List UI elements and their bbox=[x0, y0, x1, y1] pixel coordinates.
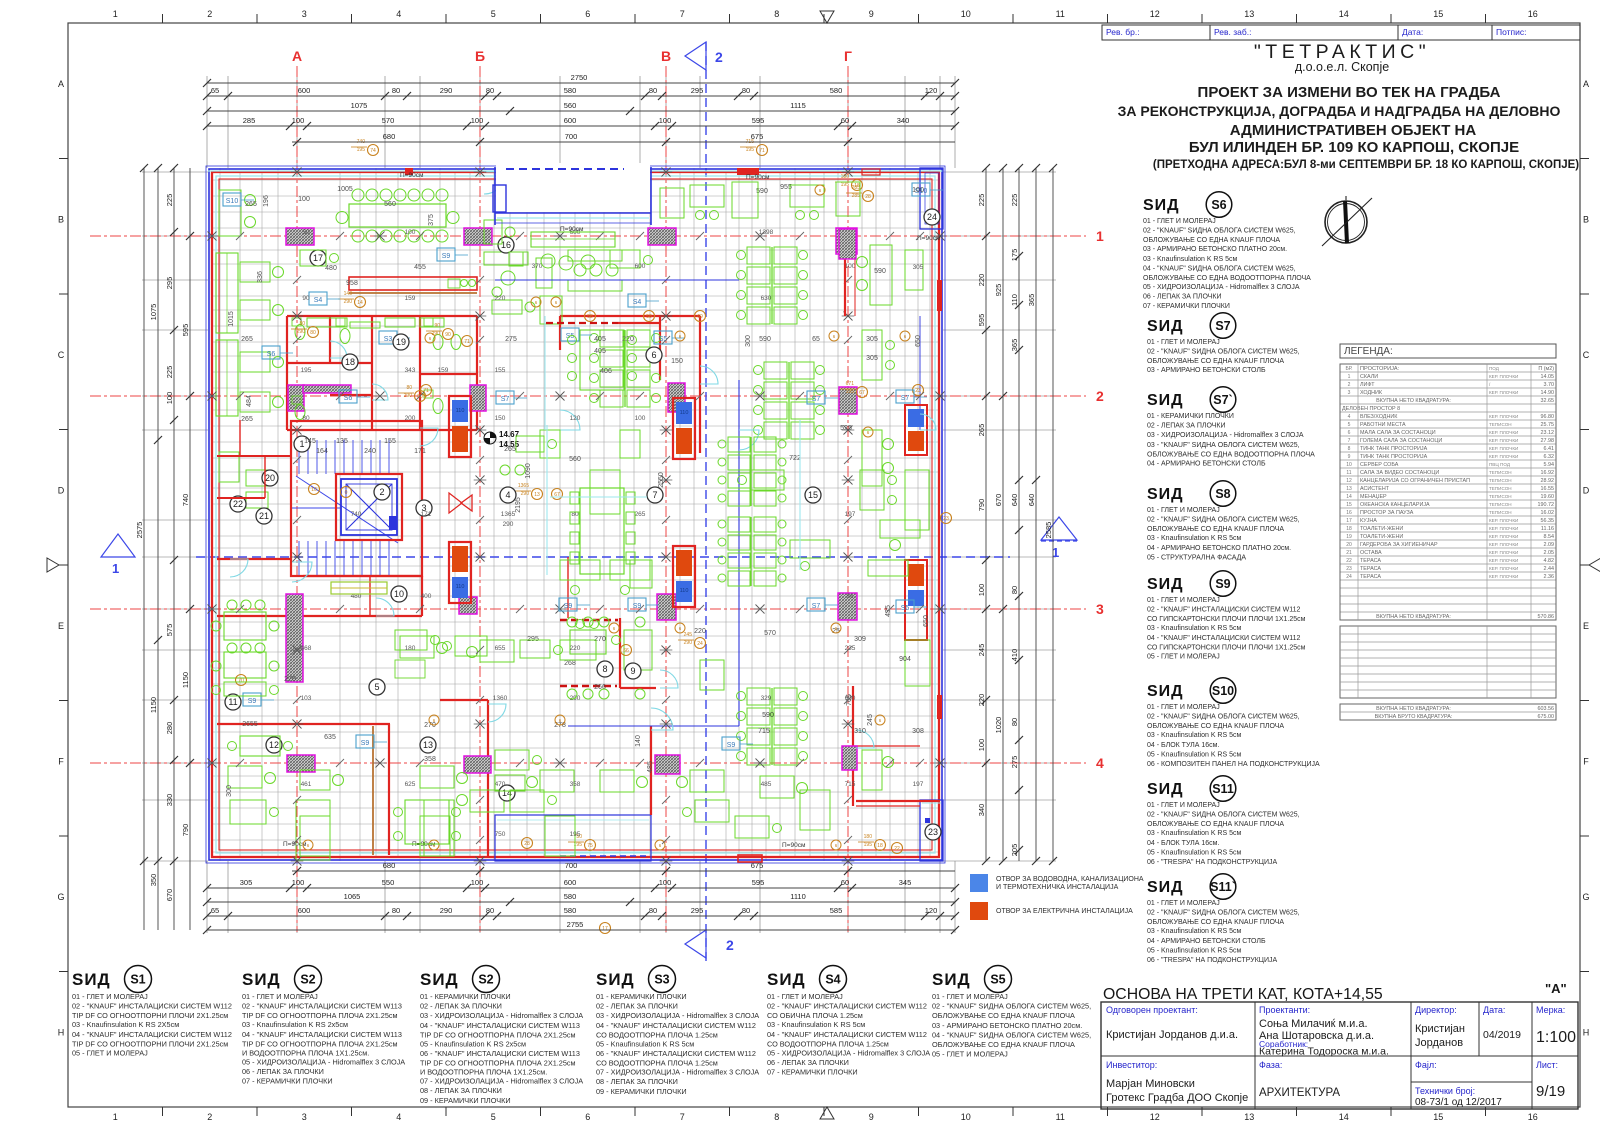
svg-text:590: 590 bbox=[759, 336, 771, 343]
svg-text:13: 13 bbox=[1346, 486, 1352, 492]
svg-text:СО ВОДООТПОРНА ПЛОЧА 1.25см: СО ВОДООТПОРНА ПЛОЧА 1.25см bbox=[767, 1039, 889, 1048]
svg-text:280: 280 bbox=[165, 722, 174, 735]
svg-text:3: 3 bbox=[1348, 390, 1351, 396]
svg-text:SИД: SИД bbox=[420, 970, 459, 989]
svg-text:05 - ГЛЕТ И МОЛЕРАЈ: 05 - ГЛЕТ И МОЛЕРАЈ bbox=[72, 1048, 148, 1057]
svg-text:80: 80 bbox=[1010, 586, 1019, 594]
svg-text:23.12: 23.12 bbox=[1541, 430, 1555, 436]
svg-text:П=90см: П=90см bbox=[746, 174, 770, 181]
svg-text:H: H bbox=[58, 1027, 65, 1037]
svg-text:S9: S9 bbox=[442, 253, 451, 260]
svg-text:675: 675 bbox=[751, 132, 764, 141]
svg-text:03 - ХИДРОИЗОЛАЦИЈА - Hidromal: 03 - ХИДРОИЗОЛАЦИЈА - Hidromalflex 3 СЛО… bbox=[1147, 432, 1304, 439]
svg-text:КЕР. ПЛОЧКИ: КЕР. ПЛОЧКИ bbox=[1489, 558, 1518, 563]
svg-text:12: 12 bbox=[1346, 478, 1352, 484]
svg-text:603.56: 603.56 bbox=[1538, 706, 1555, 712]
svg-text:2.44: 2.44 bbox=[1544, 566, 1555, 572]
svg-text:110: 110 bbox=[456, 408, 465, 414]
svg-text:11: 11 bbox=[1056, 1112, 1065, 1122]
svg-text:РАБОТНИ МЕСТА: РАБОТНИ МЕСТА bbox=[1360, 422, 1406, 428]
svg-text:ТЕПИСОН: ТЕПИСОН bbox=[1489, 502, 1512, 507]
svg-text:740: 740 bbox=[181, 494, 190, 507]
svg-text:03 - ХИДРОИЗОЛАЦИЈА - Hidromal: 03 - ХИДРОИЗОЛАЦИЈА - Hidromalflex 3 СЛО… bbox=[420, 1011, 583, 1020]
svg-text:TIP DF СО ОГНООТПОРНА ПЛОЧА 2X: TIP DF СО ОГНООТПОРНА ПЛОЧА 2X1.25см bbox=[242, 1011, 398, 1020]
svg-text:S5: S5 bbox=[990, 973, 1005, 987]
svg-text:461: 461 bbox=[301, 781, 312, 788]
svg-text:220: 220 bbox=[977, 694, 986, 707]
svg-text:09 - КЕРАМИЧКИ ПЛОЧКИ: 09 - КЕРАМИЧКИ ПЛОЧКИ bbox=[596, 1087, 687, 1096]
svg-text:329: 329 bbox=[761, 695, 772, 702]
svg-text:ГОЛЕМА САЛА ЗА СОСТАНОЦИ: ГОЛЕМА САЛА ЗА СОСТАНОЦИ bbox=[1360, 438, 1442, 444]
svg-text:370: 370 bbox=[532, 263, 543, 270]
svg-text:2: 2 bbox=[207, 1112, 212, 1122]
svg-text:790: 790 bbox=[977, 499, 986, 512]
svg-text:96.80: 96.80 bbox=[1541, 414, 1555, 420]
svg-text:05 - ГЛЕТ И МОЛЕРАЈ: 05 - ГЛЕТ И МОЛЕРАЈ bbox=[1147, 653, 1220, 660]
svg-text:D: D bbox=[1583, 485, 1590, 495]
svg-text:600: 600 bbox=[845, 695, 856, 702]
svg-text:12: 12 bbox=[1150, 9, 1160, 19]
svg-text:S6: S6 bbox=[344, 395, 353, 402]
svg-text:595: 595 bbox=[752, 878, 765, 887]
svg-text:01 - ГЛЕТ И МОЛЕРАЈ: 01 - ГЛЕТ И МОЛЕРАЈ bbox=[242, 992, 318, 1001]
svg-text:02 - "KNAUF" SИДНА ОБЛОГА СИС: 02 - "KNAUF" SИДНА ОБЛОГА СИСТЕМ W625, bbox=[1147, 517, 1300, 524]
svg-text:05 - ХИДРОИЗОЛАЦИЈА - Hidromal: 05 - ХИДРОИЗОЛАЦИЈА - Hidromalflex 3 СЛО… bbox=[242, 1057, 405, 1066]
svg-text:1090: 1090 bbox=[525, 463, 532, 479]
svg-text:02 - "KNAUF" ИНСТАЛАЦИСКИ СИСТ: 02 - "KNAUF" ИНСТАЛАЦИСКИ СИСТЕМ W112 bbox=[767, 1002, 927, 1011]
svg-text:485: 485 bbox=[761, 781, 772, 788]
svg-text:КАНЦЕЛАРИЈА СО ОГРАНИЧЕН ПРИСТ: КАНЦЕЛАРИЈА СО ОГРАНИЧЕН ПРИСТАП bbox=[1360, 478, 1470, 484]
svg-text:266: 266 bbox=[594, 684, 606, 691]
svg-text:345: 345 bbox=[899, 878, 912, 887]
svg-text:80: 80 bbox=[742, 906, 750, 915]
svg-text:590: 590 bbox=[874, 268, 886, 275]
svg-text:23: 23 bbox=[943, 516, 949, 522]
svg-text:100: 100 bbox=[165, 392, 174, 405]
svg-text:22: 22 bbox=[894, 846, 900, 852]
svg-text:Кристијан: Кристијан bbox=[1415, 1023, 1465, 1035]
svg-text:02 - "KNAUF" ИНСТАЛАЦИСКИ СИСТ: 02 - "KNAUF" ИНСТАЛАЦИСКИ СИСТЕМ W112 bbox=[72, 1002, 232, 1011]
svg-text:ГАРДЕРОБА ЗА ХИГИЕНИЧАР: ГАРДЕРОБА ЗА ХИГИЕНИЧАР bbox=[1360, 542, 1438, 548]
svg-text:670: 670 bbox=[165, 889, 174, 902]
svg-text:КЕР. ПЛОЧКИ: КЕР. ПЛОЧКИ bbox=[1489, 414, 1518, 419]
svg-text:295: 295 bbox=[165, 277, 174, 290]
svg-text:14.90: 14.90 bbox=[1541, 390, 1555, 396]
svg-text:19: 19 bbox=[396, 337, 406, 347]
svg-text:2: 2 bbox=[379, 487, 384, 497]
svg-text:150: 150 bbox=[495, 415, 506, 422]
svg-text:180: 180 bbox=[841, 174, 850, 180]
svg-text:06 - ЛЕПАК ЗА ПЛОЧКИ: 06 - ЛЕПАК ЗА ПЛОЧКИ bbox=[1143, 294, 1222, 301]
svg-text:197: 197 bbox=[913, 781, 924, 788]
svg-text:ЛЕГЕНДА:: ЛЕГЕНДА: bbox=[1344, 346, 1393, 357]
svg-text:245: 245 bbox=[867, 714, 874, 726]
svg-text:05 - Knaufinsulation K RS 5см: 05 - Knaufinsulation K RS 5см bbox=[1147, 751, 1241, 758]
svg-text:S3: S3 bbox=[384, 336, 393, 343]
svg-text:Директор:: Директор: bbox=[1415, 1005, 1457, 1015]
svg-text:700: 700 bbox=[565, 861, 578, 870]
svg-text:01 - КЕРАМИЧКИ ПЛОЧКИ: 01 - КЕРАМИЧКИ ПЛОЧКИ bbox=[1147, 413, 1234, 420]
svg-text:58: 58 bbox=[587, 314, 593, 320]
svg-text:16.02: 16.02 bbox=[1541, 510, 1555, 516]
svg-text:1015: 1015 bbox=[228, 311, 235, 327]
svg-text:225: 225 bbox=[165, 366, 174, 379]
svg-text:1150: 1150 bbox=[181, 672, 190, 688]
svg-text:02 - "KNAUF" SИДНА ОБЛОГА СИС: 02 - "KNAUF" SИДНА ОБЛОГА СИСТЕМ W625, bbox=[1147, 349, 1300, 356]
svg-text:100: 100 bbox=[292, 878, 305, 887]
svg-text:КЕР. ПЛОЧКИ: КЕР. ПЛОЧКИ bbox=[1489, 534, 1518, 539]
svg-text:02 - ЛЕПАК ЗА ПЛОЧКИ: 02 - ЛЕПАК ЗА ПЛОЧКИ bbox=[420, 1002, 502, 1011]
svg-text:110: 110 bbox=[1010, 294, 1019, 306]
svg-text:5: 5 bbox=[374, 682, 379, 692]
svg-text:ВКУПНА НЕТО КВАДРАТУРА:: ВКУПНА НЕТО КВАДРАТУРА: bbox=[1376, 614, 1451, 620]
svg-text:S4: S4 bbox=[314, 297, 323, 304]
svg-text:ТИНК ТАНК ПРОСТОРИЈА: ТИНК ТАНК ПРОСТОРИЈА bbox=[1360, 454, 1428, 460]
svg-text:485: 485 bbox=[647, 761, 654, 773]
svg-text:12: 12 bbox=[269, 740, 279, 750]
svg-text:02 - "KNAUF" SИДНА ОБЛОГА СИС: 02 - "KNAUF" SИДНА ОБЛОГА СИСТЕМ W625, bbox=[1143, 228, 1296, 235]
svg-text:180: 180 bbox=[405, 645, 416, 652]
svg-text:2.36: 2.36 bbox=[1544, 574, 1555, 580]
svg-text:S10: S10 bbox=[1212, 684, 1234, 698]
svg-text:290: 290 bbox=[297, 329, 306, 335]
svg-text:ТЕПИСОН: ТЕПИСОН bbox=[1489, 494, 1512, 499]
svg-text:ТЕРАСА: ТЕРАСА bbox=[1360, 574, 1381, 580]
svg-text:197: 197 bbox=[845, 511, 856, 518]
svg-text:G: G bbox=[1582, 892, 1589, 902]
svg-text:7: 7 bbox=[652, 490, 657, 500]
svg-text:60: 60 bbox=[841, 878, 849, 887]
svg-text:07 - КЕРАМИЧКИ ПЛОЧКИ: 07 - КЕРАМИЧКИ ПЛОЧКИ bbox=[767, 1068, 858, 1077]
svg-text:560: 560 bbox=[384, 201, 396, 208]
svg-text:B: B bbox=[58, 214, 64, 224]
svg-text:11.16: 11.16 bbox=[1541, 526, 1554, 532]
svg-text:220: 220 bbox=[977, 274, 986, 287]
svg-text:C: C bbox=[58, 350, 65, 360]
svg-text:270: 270 bbox=[284, 676, 296, 683]
svg-text:06 - ЛЕПАК ЗА ПЛОЧКИ: 06 - ЛЕПАК ЗА ПЛОЧКИ bbox=[767, 1058, 849, 1067]
svg-text:75: 75 bbox=[587, 843, 593, 849]
svg-text:E: E bbox=[58, 621, 64, 631]
svg-text:1115: 1115 bbox=[790, 101, 806, 110]
svg-text:265: 265 bbox=[977, 424, 986, 437]
svg-text:196: 196 bbox=[263, 195, 270, 207]
svg-text:ОТВОР ЗА ЕЛЕКТРИЧНА ИНСТАЛАЦИЈ: ОТВОР ЗА ЕЛЕКТРИЧНА ИНСТАЛАЦИЈА bbox=[996, 908, 1133, 915]
svg-text:100: 100 bbox=[405, 229, 416, 236]
svg-text:ТЕРАСА: ТЕРАСА bbox=[1360, 558, 1381, 564]
svg-text:675.00: 675.00 bbox=[1538, 714, 1555, 720]
svg-text:02 - "KNAUF" ИНСТАЛАЦИСКИ СИСТ: 02 - "KNAUF" ИНСТАЛАЦИСКИ СИСТЕМ W112 bbox=[1147, 607, 1301, 614]
svg-text:70: 70 bbox=[238, 678, 244, 684]
svg-text:ПРОЕКТ ЗА ИЗМЕНИ ВО ТЕК НА ГРА: ПРОЕКТ ЗА ИЗМЕНИ ВО ТЕК НА ГРАДБА bbox=[1198, 84, 1501, 101]
svg-text:A: A bbox=[1583, 79, 1589, 89]
svg-text:24: 24 bbox=[1346, 574, 1352, 580]
svg-text:220: 220 bbox=[694, 628, 706, 635]
svg-text:д.о.о.е.л. Скопје: д.о.о.е.л. Скопје bbox=[1295, 60, 1389, 74]
svg-text:"А": "А" bbox=[1545, 981, 1567, 996]
svg-text:80: 80 bbox=[486, 906, 494, 915]
svg-text:23: 23 bbox=[928, 827, 938, 837]
svg-text:20: 20 bbox=[1346, 542, 1352, 548]
svg-text:155: 155 bbox=[384, 438, 396, 445]
svg-text:405: 405 bbox=[594, 348, 606, 355]
svg-text:МАЛА САЛА ЗА СОСТАНОЦИ: МАЛА САЛА ЗА СОСТАНОЦИ bbox=[1360, 430, 1436, 436]
svg-text:S7: S7 bbox=[901, 395, 910, 402]
svg-text:100: 100 bbox=[845, 263, 856, 270]
svg-text:03 - Knaufinsulation K RS 5см: 03 - Knaufinsulation K RS 5см bbox=[1147, 625, 1241, 632]
svg-text:КЕР. ПЛОЧКИ: КЕР. ПЛОЧКИ bbox=[1489, 574, 1518, 579]
svg-text:67: 67 bbox=[859, 390, 865, 396]
svg-text:01 - КЕРАМИЧКИ ПЛОЧКИ: 01 - КЕРАМИЧКИ ПЛОЧКИ bbox=[420, 992, 511, 1001]
svg-text:Б: Б bbox=[475, 48, 485, 64]
svg-text:КЕР. ПЛОЧКИ: КЕР. ПЛОЧКИ bbox=[1489, 454, 1518, 459]
svg-text:15: 15 bbox=[1433, 9, 1443, 19]
svg-text:1110: 1110 bbox=[790, 892, 806, 901]
svg-text:200: 200 bbox=[405, 415, 416, 422]
svg-text:2: 2 bbox=[207, 9, 212, 19]
svg-text:П=90см: П=90см bbox=[400, 172, 424, 179]
svg-text:175: 175 bbox=[1010, 249, 1019, 262]
svg-text:03 - Knaufinsulation K RS 2X5с: 03 - Knaufinsulation K RS 2X5см bbox=[72, 1020, 179, 1029]
svg-text:SИД: SИД bbox=[596, 970, 635, 989]
svg-text:21: 21 bbox=[1346, 550, 1352, 556]
svg-text:Рев. заб.:: Рев. заб.: bbox=[1214, 27, 1251, 37]
svg-text:265: 265 bbox=[635, 511, 646, 518]
svg-text:03 - Knaufinsulation K RS 2x5с: 03 - Knaufinsulation K RS 2x5см bbox=[242, 1020, 348, 1029]
svg-text:195: 195 bbox=[357, 147, 366, 153]
svg-text:18: 18 bbox=[854, 183, 860, 189]
svg-text:SИД: SИД bbox=[1147, 781, 1184, 798]
svg-text:S7: S7 bbox=[501, 396, 510, 403]
svg-text:225: 225 bbox=[165, 194, 174, 207]
svg-text:110: 110 bbox=[680, 410, 689, 416]
svg-text:58: 58 bbox=[646, 314, 652, 320]
svg-text:S9: S9 bbox=[248, 698, 257, 705]
svg-text:B: B bbox=[1583, 214, 1589, 224]
svg-text:20: 20 bbox=[265, 473, 275, 483]
svg-text:1150: 1150 bbox=[149, 697, 158, 713]
svg-text:600: 600 bbox=[564, 116, 577, 125]
svg-text:400: 400 bbox=[421, 593, 432, 600]
svg-text:680: 680 bbox=[383, 861, 396, 870]
svg-text:80: 80 bbox=[299, 321, 305, 327]
svg-text:H: H bbox=[1583, 1027, 1590, 1037]
svg-text:28: 28 bbox=[865, 194, 871, 200]
svg-text:275: 275 bbox=[1010, 756, 1019, 769]
svg-text:240: 240 bbox=[364, 448, 376, 455]
svg-text:600: 600 bbox=[298, 86, 311, 95]
svg-text:06 - "KNAUF" ИНСТАЛАЦИСКИ СИСТ: 06 - "KNAUF" ИНСТАЛАЦИСКИ СИСТЕМ W113 bbox=[420, 1049, 580, 1058]
svg-text:80: 80 bbox=[302, 415, 310, 422]
svg-text:722: 722 bbox=[789, 455, 801, 462]
svg-text:05 - Knaufinsulation K RS 5см: 05 - Knaufinsulation K RS 5см bbox=[1147, 849, 1241, 856]
svg-text:03 - Knaufinsulation K RS 5см: 03 - Knaufinsulation K RS 5см bbox=[767, 1020, 865, 1029]
svg-text:01 - ГЛЕТ И МОЛЕРАЈ: 01 - ГЛЕТ И МОЛЕРАЈ bbox=[72, 992, 148, 1001]
svg-text:07 - КЕРАМИЧКИ ПЛОЧКИ: 07 - КЕРАМИЧКИ ПЛОЧКИ bbox=[242, 1077, 333, 1086]
svg-text:01 - ГЛЕТ И МОЛЕРАЈ: 01 - ГЛЕТ И МОЛЕРАЈ bbox=[1147, 339, 1220, 346]
svg-text:715: 715 bbox=[845, 781, 856, 788]
svg-text:3.70: 3.70 bbox=[1544, 382, 1555, 388]
svg-text:D: D bbox=[58, 485, 65, 495]
svg-text:КЕР. ПЛОЧКИ: КЕР. ПЛОЧКИ bbox=[1489, 438, 1518, 443]
svg-text:ОСНОВА НА ТРЕТИ КАТ, КОТА+14,: ОСНОВА НА ТРЕТИ КАТ, КОТА+14,55 bbox=[1103, 986, 1383, 1003]
svg-text:19.60: 19.60 bbox=[1541, 494, 1555, 500]
svg-text:04 - "KNAUF" ИНСТАЛАЦИСКИ СИСТ: 04 - "KNAUF" ИНСТАЛАЦИСКИ СИСТЕМ W112 bbox=[596, 1021, 756, 1030]
svg-text:Мерка:: Мерка: bbox=[1536, 1005, 1565, 1015]
svg-text:28.92: 28.92 bbox=[1541, 478, 1555, 484]
svg-text:2750: 2750 bbox=[571, 73, 588, 82]
svg-text:100: 100 bbox=[659, 116, 672, 125]
svg-text:715: 715 bbox=[758, 728, 770, 735]
svg-text:25.75: 25.75 bbox=[1541, 422, 1555, 428]
svg-text:КЕР. ПЛОЧКИ: КЕР. ПЛОЧКИ bbox=[1489, 390, 1518, 395]
svg-text:04 - БЛОК ТУЛА 16см.: 04 - БЛОК ТУЛА 16см. bbox=[1147, 742, 1219, 749]
svg-text:14: 14 bbox=[1346, 494, 1352, 500]
svg-text:ОБЛОЖУВАЊЕ СО ЕДНА KNAUF ПЛОЧА: ОБЛОЖУВАЊЕ СО ЕДНА KNAUF ПЛОЧА bbox=[1147, 723, 1284, 730]
svg-text:08 - ЛЕПАК ЗА ПЛОЧКИ: 08 - ЛЕПАК ЗА ПЛОЧКИ bbox=[420, 1086, 502, 1095]
svg-text:Соња Милачиќ м.и.а.: Соња Милачиќ м.и.а. bbox=[1259, 1018, 1368, 1030]
svg-text:470: 470 bbox=[495, 781, 506, 788]
svg-text:05 - ХИДРОИЗОЛАЦИЈА - Hidromal: 05 - ХИДРОИЗОЛАЦИЈА - Hidromalflex 3 СЛО… bbox=[767, 1048, 930, 1057]
svg-text:6: 6 bbox=[651, 350, 656, 360]
svg-text:56.35: 56.35 bbox=[1541, 518, 1555, 524]
svg-text:343: 343 bbox=[405, 367, 416, 374]
svg-text:S9: S9 bbox=[727, 742, 736, 749]
svg-text:468: 468 bbox=[301, 645, 312, 652]
svg-text:Инвеститор:: Инвеститор: bbox=[1106, 1060, 1157, 1070]
svg-text:ОБЛОЖУВАЊЕ СО ЕДНА KNAUF ПЛОЧА: ОБЛОЖУВАЊЕ СО ЕДНА KNAUF ПЛОЧА bbox=[1143, 237, 1280, 244]
svg-text:S6: S6 bbox=[1211, 198, 1226, 212]
svg-text:790: 790 bbox=[181, 824, 190, 837]
svg-text:04 - "KNAUF" SИДНА ОБЛОГА СИС: 04 - "KNAUF" SИДНА ОБЛОГА СИСТЕМ W625, bbox=[932, 1030, 1091, 1039]
svg-text:ОБЛОЖУВАЊЕ СО ЕДНА KNAUF ПЛОЧА: ОБЛОЖУВАЊЕ СО ЕДНА KNAUF ПЛОЧА bbox=[1147, 919, 1284, 926]
svg-text:358: 358 bbox=[570, 781, 581, 788]
svg-text:3: 3 bbox=[302, 1112, 307, 1122]
svg-text:17: 17 bbox=[313, 253, 323, 263]
svg-text:14.05: 14.05 bbox=[1541, 374, 1555, 380]
svg-text:5: 5 bbox=[491, 1112, 496, 1122]
svg-text:100: 100 bbox=[298, 196, 310, 203]
svg-text:110: 110 bbox=[680, 588, 689, 594]
svg-text:ТОАЛЕТИ-ЖЕНИ: ТОАЛЕТИ-ЖЕНИ bbox=[1360, 534, 1403, 540]
svg-text:6.32: 6.32 bbox=[1544, 454, 1555, 460]
svg-text:Лист:: Лист: bbox=[1536, 1060, 1558, 1070]
svg-text:8.54: 8.54 bbox=[1544, 534, 1555, 540]
svg-text:КУЈНА: КУЈНА bbox=[1360, 518, 1377, 524]
svg-text:2: 2 bbox=[1096, 388, 1104, 404]
svg-text:600: 600 bbox=[298, 906, 311, 915]
svg-text:69: 69 bbox=[697, 314, 703, 320]
svg-text:71: 71 bbox=[464, 339, 470, 345]
svg-text:Фајл:: Фајл: bbox=[1415, 1060, 1437, 1070]
svg-text:195: 195 bbox=[746, 147, 755, 153]
svg-text:1020: 1020 bbox=[994, 717, 1003, 734]
svg-text:1365: 1365 bbox=[518, 483, 529, 489]
svg-text:305: 305 bbox=[866, 336, 878, 343]
svg-text:1:100: 1:100 bbox=[1536, 1029, 1576, 1046]
svg-text:340: 340 bbox=[897, 116, 910, 125]
svg-text:П=90см: П=90см bbox=[917, 235, 941, 242]
svg-text:ВКУПНА БРУТО КВАДРАТУРА:: ВКУПНА БРУТО КВАДРАТУРА: bbox=[1375, 714, 1453, 720]
svg-text:2.05: 2.05 bbox=[1544, 550, 1555, 556]
svg-text:190.72: 190.72 bbox=[1538, 502, 1555, 508]
svg-text:268: 268 bbox=[564, 660, 576, 667]
svg-text:330: 330 bbox=[165, 794, 174, 807]
svg-text:ОСТАВА: ОСТАВА bbox=[1360, 550, 1382, 556]
svg-text:80: 80 bbox=[742, 86, 750, 95]
svg-text:S4: S4 bbox=[633, 299, 642, 306]
svg-text:04 - "KNAUF" ИНСТАЛАЦИСКИ СИСТ: 04 - "KNAUF" ИНСТАЛАЦИСКИ СИСТЕМ W113 bbox=[242, 1030, 402, 1039]
svg-text:225: 225 bbox=[977, 194, 986, 207]
svg-text:6: 6 bbox=[585, 9, 590, 19]
svg-text:SИД: SИД bbox=[1147, 576, 1184, 593]
svg-text:650: 650 bbox=[915, 335, 922, 347]
svg-text:07 - ХИДРОИЗОЛАЦИЈА - Hidromal: 07 - ХИДРОИЗОЛАЦИЈА - Hidromalflex 3 СЛО… bbox=[420, 1077, 583, 1086]
svg-text:103: 103 bbox=[301, 695, 312, 702]
svg-text:04 - АРМИРАНО БЕТОНСКИ СТОЛБ: 04 - АРМИРАНО БЕТОНСКИ СТОЛБ bbox=[1147, 460, 1266, 467]
svg-text:2195: 2195 bbox=[515, 497, 522, 513]
svg-text:180: 180 bbox=[864, 834, 873, 840]
svg-text:ТЕПИСОН: ТЕПИСОН bbox=[1489, 422, 1512, 427]
svg-text:13: 13 bbox=[1244, 1112, 1254, 1122]
svg-text:100: 100 bbox=[471, 878, 484, 887]
svg-text:E: E bbox=[1583, 621, 1589, 631]
svg-text:9: 9 bbox=[630, 666, 635, 676]
svg-text:ОБЛОЖУВАЊЕ СО ЕДНА KNAUF ПЛОЧА: ОБЛОЖУВАЊЕ СО ЕДНА KNAUF ПЛОЧА bbox=[1147, 358, 1284, 365]
svg-text:S4: S4 bbox=[825, 973, 840, 987]
svg-text:1: 1 bbox=[1096, 228, 1104, 244]
svg-text:80: 80 bbox=[406, 385, 412, 391]
svg-text:309: 309 bbox=[854, 636, 866, 643]
svg-text:06 - "TRESPA" НА ПОДКОНСТРУКЦИ: 06 - "TRESPA" НА ПОДКОНСТРУКЦИЈА bbox=[1147, 859, 1277, 866]
svg-text:22: 22 bbox=[233, 499, 243, 509]
svg-text:265: 265 bbox=[241, 336, 253, 343]
svg-text:164: 164 bbox=[316, 448, 328, 455]
svg-text:640: 640 bbox=[1010, 494, 1019, 507]
svg-text:СО ОБИЧНА ПЛОЧА 1.25см: СО ОБИЧНА ПЛОЧА 1.25см bbox=[767, 1011, 863, 1020]
svg-text:01 - ГЛЕТ И МОЛЕРАЈ: 01 - ГЛЕТ И МОЛЕРАЈ bbox=[1147, 704, 1220, 711]
svg-text:04 - "KNAUF" ИНСТАЛАЦИСКИ СИСТ: 04 - "KNAUF" ИНСТАЛАЦИСКИ СИСТЕМ W112 bbox=[1147, 635, 1301, 642]
svg-text:П=90см: П=90см bbox=[782, 842, 806, 849]
svg-text:S11`: S11` bbox=[1210, 880, 1236, 894]
svg-text:235: 235 bbox=[845, 645, 856, 652]
svg-text:04/2019: 04/2019 bbox=[1483, 1029, 1521, 1041]
svg-text:3: 3 bbox=[302, 9, 307, 19]
svg-text:245: 245 bbox=[977, 644, 986, 657]
svg-text:СКАЛИ: СКАЛИ bbox=[1360, 374, 1378, 380]
svg-text:8: 8 bbox=[1348, 446, 1351, 452]
svg-text:G: G bbox=[57, 892, 64, 902]
svg-text:480: 480 bbox=[325, 265, 337, 272]
svg-text:ЛИФТ: ЛИФТ bbox=[1360, 382, 1375, 388]
svg-text:580: 580 bbox=[830, 86, 843, 95]
svg-text:Јорданов: Јорданов bbox=[1415, 1037, 1463, 1049]
svg-text:02 - "KNAUF" SИДНА ОБЛОГА СИС: 02 - "KNAUF" SИДНА ОБЛОГА СИСТЕМ W625, bbox=[1147, 812, 1300, 819]
svg-text:03 - Knaufinsulation K RS 5см: 03 - Knaufinsulation K RS 5см bbox=[1147, 732, 1241, 739]
svg-text:11: 11 bbox=[1346, 470, 1351, 476]
svg-text:575: 575 bbox=[165, 624, 174, 637]
svg-text:ТЕРАСА: ТЕРАСА bbox=[1360, 566, 1381, 572]
svg-text:5: 5 bbox=[491, 9, 496, 19]
svg-text:0: 0 bbox=[345, 490, 348, 496]
svg-text:305: 305 bbox=[866, 355, 878, 362]
svg-text:Фаза:: Фаза: bbox=[1259, 1060, 1282, 1070]
svg-text:(ПРЕТХОДНА АДРЕСА:БУЛ 8-ми СЕП: (ПРЕТХОДНА АДРЕСА:БУЛ 8-ми СЕПТЕМВРИ БР.… bbox=[1153, 159, 1579, 171]
svg-text:275: 275 bbox=[505, 336, 517, 343]
svg-text:24: 24 bbox=[927, 212, 937, 222]
svg-text:16: 16 bbox=[1528, 1112, 1538, 1122]
svg-text:340: 340 bbox=[977, 804, 986, 817]
